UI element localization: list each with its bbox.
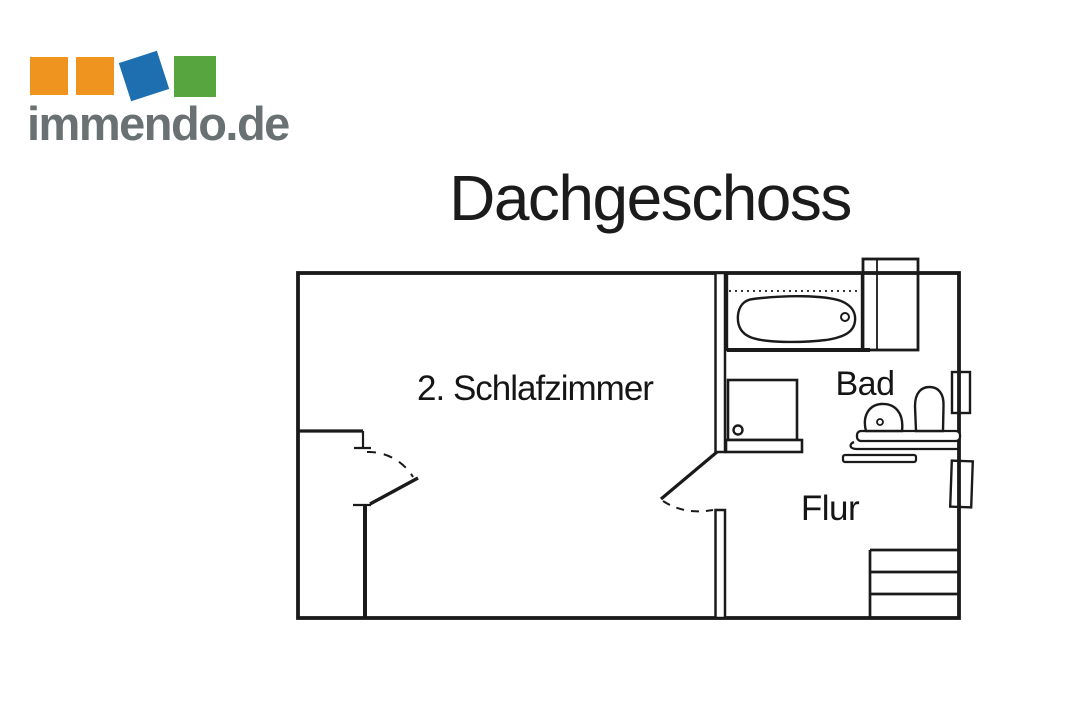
divider-wall-upper [716,273,726,452]
bedroom-nook [298,431,418,617]
shower-base-step [726,440,802,452]
door-swing-arc [663,501,713,511]
divider-wall-lower [716,510,726,618]
door-bedroom-hall [661,452,717,511]
room-label-schlafzimmer: 2. Schlafzimmer [415,371,655,406]
bathtub [727,273,870,350]
screenshot-root: immendo.de Dachgeschoss [0,0,1080,720]
room-label-flur: Flur [780,491,880,526]
window-upper [952,372,970,413]
shower [726,380,802,452]
outer-walls [298,273,959,618]
floorplan-drawing [0,0,1080,720]
washbasin [865,404,902,431]
vanity-front-edge [851,442,959,449]
window-lower [950,461,973,508]
stairs [870,550,958,617]
bathtub-enclosure [727,273,862,350]
toilet [915,387,944,431]
vanity-counter [857,431,960,441]
shelf-rail [843,455,916,462]
door-leaf [661,452,717,499]
door-swing-arc [367,452,413,477]
bathtub-drain [841,313,849,321]
shower-tray [728,380,797,440]
room-label-bad: Bad [815,367,915,401]
bathtub-basin [738,296,855,342]
door-leaf [370,478,418,504]
